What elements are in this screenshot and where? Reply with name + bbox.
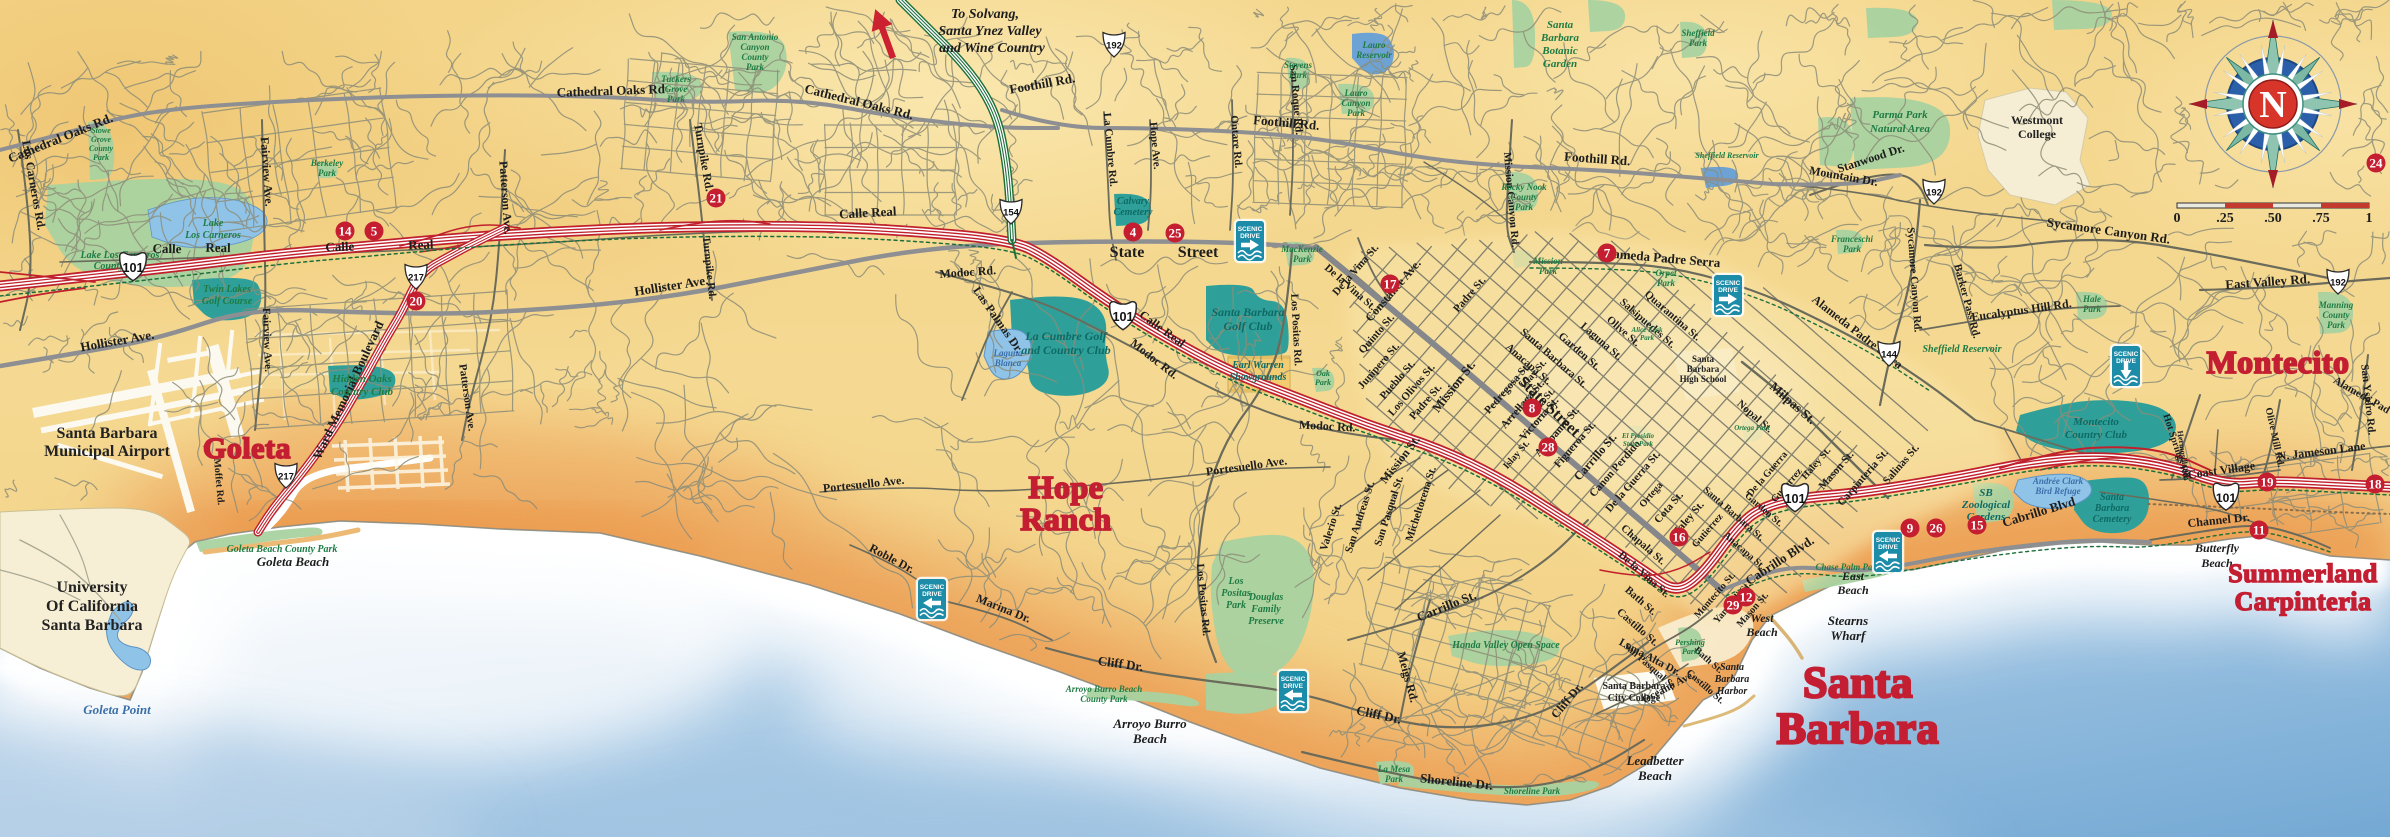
- svg-text:Beach: Beach: [1637, 768, 1672, 783]
- svg-text:Montecito: Montecito: [2072, 416, 2119, 428]
- svg-text:Lake: Lake: [202, 218, 224, 229]
- svg-text:Sheffield: Sheffield: [1681, 28, 1715, 38]
- svg-text:Carpinteria: Carpinteria: [2235, 587, 2372, 616]
- svg-text:Park: Park: [1682, 647, 1698, 656]
- svg-text:11: 11: [2253, 523, 2265, 538]
- svg-text:Honda Valley Open Space: Honda Valley Open Space: [1451, 640, 1560, 651]
- svg-text:SCENIC: SCENIC: [2114, 351, 2139, 358]
- svg-text:144: 144: [1881, 350, 1898, 361]
- svg-text:SB: SB: [1979, 487, 1992, 499]
- svg-text:Ortega Park: Ortega Park: [1734, 424, 1770, 432]
- svg-text:Park: Park: [1539, 266, 1558, 276]
- svg-text:Barbara: Barbara: [2094, 503, 2129, 514]
- svg-text:Golf Course: Golf Course: [202, 296, 253, 307]
- svg-text:Bird Refuge: Bird Refuge: [2034, 486, 2080, 496]
- svg-text:217: 217: [278, 472, 294, 483]
- svg-text:101: 101: [122, 261, 143, 275]
- svg-text:DRIVE: DRIVE: [1718, 287, 1739, 294]
- svg-text:Botanic: Botanic: [1541, 45, 1578, 57]
- svg-text:County: County: [741, 52, 769, 62]
- svg-text:Park: Park: [1315, 378, 1331, 387]
- svg-text:Beach: Beach: [1132, 731, 1167, 746]
- svg-text:Calle Real: Calle Real: [839, 203, 897, 221]
- svg-text:Santa: Santa: [2100, 492, 2124, 503]
- svg-text:Westmont: Westmont: [2011, 113, 2063, 127]
- svg-text:Park: Park: [2083, 304, 2102, 314]
- svg-text:217: 217: [408, 273, 424, 284]
- svg-text:State Park: State Park: [1623, 440, 1654, 448]
- svg-text:192: 192: [1926, 188, 1942, 199]
- svg-text:Barbara: Barbara: [1777, 704, 1939, 753]
- svg-text:Park: Park: [2327, 320, 2346, 330]
- svg-text:14: 14: [339, 224, 353, 239]
- svg-text:Wharf: Wharf: [1831, 628, 1867, 643]
- svg-text:Parma Park: Parma Park: [1872, 109, 1928, 121]
- svg-text:N: N: [2259, 84, 2286, 126]
- svg-text:High School: High School: [1680, 374, 1727, 384]
- svg-text:Street: Street: [1178, 244, 1219, 261]
- svg-text:Park: Park: [1843, 244, 1862, 254]
- svg-text:Alice Keck: Alice Keck: [1631, 326, 1663, 334]
- svg-text:To Solvang,: To Solvang,: [951, 7, 1019, 22]
- svg-text:Barbara: Barbara: [1714, 674, 1749, 685]
- svg-text:28: 28: [1542, 440, 1556, 455]
- svg-text:DRIVE: DRIVE: [1240, 233, 1261, 240]
- svg-text:15: 15: [1971, 518, 1985, 533]
- svg-text:Sheffield Reservoir: Sheffield Reservoir: [1695, 151, 1759, 160]
- svg-text:Park: Park: [1347, 108, 1366, 118]
- svg-text:Stowe: Stowe: [91, 126, 111, 135]
- svg-text:Showgrounds: Showgrounds: [1230, 372, 1287, 383]
- svg-text:Blanca: Blanca: [994, 358, 1022, 368]
- svg-text:Positas: Positas: [1221, 588, 1251, 599]
- svg-text:State: State: [1110, 244, 1145, 261]
- svg-text:Park: Park: [1385, 774, 1404, 784]
- svg-text:and Wine Country: and Wine Country: [939, 41, 1046, 56]
- svg-text:9: 9: [1907, 521, 1914, 536]
- svg-text:Hale: Hale: [2082, 294, 2101, 304]
- svg-text:Reservoir: Reservoir: [1355, 50, 1392, 60]
- svg-text:Goleta: Goleta: [203, 432, 291, 465]
- svg-text:Montecito: Montecito: [2206, 344, 2349, 380]
- svg-text:Park: Park: [93, 153, 109, 162]
- svg-text:.50: .50: [2264, 211, 2282, 226]
- svg-text:Arroyo Burro Beach: Arroyo Burro Beach: [1065, 684, 1143, 694]
- svg-text:Hidden Oaks: Hidden Oaks: [331, 373, 392, 385]
- svg-text:Sheffield Reservoir: Sheffield Reservoir: [1923, 344, 2002, 355]
- svg-text:.25: .25: [2216, 211, 2234, 226]
- svg-text:Santa: Santa: [1803, 658, 1913, 707]
- svg-text:24: 24: [2370, 156, 2384, 171]
- svg-text:101: 101: [2216, 491, 2236, 505]
- svg-text:Park: Park: [1226, 600, 1246, 611]
- svg-text:Calvary: Calvary: [1117, 196, 1150, 207]
- svg-text:Country Club: Country Club: [2065, 429, 2128, 441]
- svg-text:20: 20: [410, 294, 423, 309]
- svg-text:Park: Park: [667, 94, 686, 104]
- svg-text:Park: Park: [746, 62, 765, 72]
- svg-text:SCENIC: SCENIC: [1238, 226, 1263, 233]
- svg-text:Hope: Hope: [1029, 469, 1104, 505]
- svg-text:Santa: Santa: [1720, 662, 1744, 673]
- svg-text:Stevens: Stevens: [1284, 60, 1312, 70]
- svg-text:Modoc Rd.: Modoc Rd.: [1299, 418, 1356, 435]
- svg-text:Oak: Oak: [1316, 369, 1330, 378]
- svg-text:Calle: Calle: [325, 238, 355, 254]
- svg-text:Lauro: Lauro: [1361, 40, 1386, 50]
- svg-text:Santa: Santa: [1547, 19, 1574, 31]
- svg-text:Santa: Santa: [1692, 354, 1715, 364]
- svg-text:Natural Area: Natural Area: [1869, 123, 1930, 135]
- svg-text:Santa Barbara: Santa Barbara: [57, 425, 158, 442]
- svg-text:Barbara: Barbara: [1540, 32, 1579, 44]
- svg-text:Family: Family: [1250, 604, 1281, 615]
- svg-text:Country Club: Country Club: [331, 386, 394, 398]
- svg-text:El Presidio: El Presidio: [1621, 432, 1655, 440]
- svg-text:25: 25: [1169, 226, 1183, 241]
- svg-text:Beach: Beach: [1745, 625, 1778, 639]
- svg-text:4: 4: [1130, 225, 1137, 240]
- svg-text:Park: Park: [1657, 278, 1676, 288]
- svg-text:Canyon: Canyon: [740, 42, 769, 52]
- svg-text:Cemetery: Cemetery: [2093, 514, 2132, 525]
- svg-text:County: County: [1510, 192, 1538, 202]
- svg-text:Butterfly: Butterfly: [2194, 541, 2240, 555]
- svg-text:Santa Barbara: Santa Barbara: [1602, 681, 1665, 692]
- svg-text:Tuckers: Tuckers: [661, 74, 691, 84]
- svg-text:Barbara: Barbara: [1687, 364, 1720, 374]
- svg-text:San Antonio: San Antonio: [732, 32, 779, 42]
- svg-text:Canyon: Canyon: [1341, 98, 1370, 108]
- svg-text:Park: Park: [1293, 254, 1312, 264]
- svg-text:Ranch: Ranch: [1020, 501, 1111, 537]
- svg-text:East: East: [1841, 569, 1865, 583]
- svg-text:Laguna: Laguna: [992, 348, 1023, 358]
- svg-text:Mission: Mission: [1532, 256, 1563, 266]
- svg-text:Real: Real: [205, 240, 231, 255]
- svg-text:Preserve: Preserve: [1248, 616, 1284, 627]
- svg-text:Santa Barbara: Santa Barbara: [42, 617, 143, 634]
- svg-text:192: 192: [2330, 278, 2346, 289]
- svg-text:Franceschi: Franceschi: [1830, 234, 1874, 244]
- svg-text:Pershing: Pershing: [1675, 638, 1705, 647]
- svg-text:Park: Park: [1640, 334, 1655, 342]
- svg-text:.75: .75: [2312, 211, 2330, 226]
- svg-text:Berkeley: Berkeley: [310, 158, 344, 168]
- svg-text:Twin Lakes: Twin Lakes: [203, 284, 251, 295]
- svg-text:SCENIC: SCENIC: [1876, 537, 1901, 544]
- svg-text:17: 17: [1384, 277, 1398, 292]
- svg-text:City College: City College: [1608, 693, 1661, 704]
- svg-text:18: 18: [2369, 477, 2383, 492]
- svg-text:Grove: Grove: [665, 84, 688, 94]
- svg-text:21: 21: [710, 191, 723, 206]
- svg-text:101: 101: [1784, 492, 1805, 506]
- svg-text:7: 7: [1604, 246, 1611, 261]
- svg-text:Shoreline Park: Shoreline Park: [1504, 786, 1561, 796]
- svg-text:County: County: [89, 144, 113, 153]
- svg-text:19: 19: [2261, 475, 2275, 490]
- svg-text:Los: Los: [1228, 576, 1244, 587]
- svg-text:University: University: [56, 579, 127, 596]
- svg-text:DRIVE: DRIVE: [1283, 683, 1304, 690]
- svg-text:Harbor: Harbor: [1716, 686, 1748, 697]
- svg-text:Summerland: Summerland: [2228, 559, 2378, 588]
- svg-text:0: 0: [2174, 211, 2181, 226]
- svg-text:1: 1: [2366, 211, 2373, 226]
- svg-text:101: 101: [1112, 310, 1133, 324]
- svg-text:Stearns: Stearns: [1828, 613, 1868, 628]
- svg-text:Earl Warren: Earl Warren: [1231, 360, 1284, 371]
- svg-text:Lauro: Lauro: [1343, 88, 1368, 98]
- svg-text:Santa Ynez Valley: Santa Ynez Valley: [938, 24, 1042, 39]
- svg-text:Real: Real: [408, 237, 434, 253]
- svg-text:Zoological: Zoological: [1961, 499, 2011, 511]
- svg-text:Goleta Point: Goleta Point: [83, 702, 151, 717]
- svg-text:Fairview Ave.: Fairview Ave.: [260, 308, 274, 373]
- svg-text:Of California: Of California: [46, 598, 138, 615]
- svg-text:Cemetery: Cemetery: [1114, 207, 1153, 218]
- svg-text:Rocky Nook: Rocky Nook: [1500, 182, 1547, 192]
- svg-text:Orpet: Orpet: [1656, 268, 1677, 278]
- svg-text:Park: Park: [318, 168, 337, 178]
- svg-text:12: 12: [1740, 590, 1753, 605]
- svg-text:192: 192: [1106, 41, 1122, 52]
- svg-text:Grove: Grove: [91, 135, 111, 144]
- svg-text:Douglas: Douglas: [1248, 592, 1284, 603]
- svg-text:Park: Park: [1289, 70, 1308, 80]
- svg-text:County Park: County Park: [1080, 694, 1128, 704]
- svg-text:La Cumbre Golf: La Cumbre Golf: [1024, 329, 1107, 343]
- svg-text:Golf Club: Golf Club: [1223, 319, 1272, 333]
- svg-text:Santa Barbara: Santa Barbara: [1211, 305, 1284, 319]
- svg-text:SCENIC: SCENIC: [1716, 280, 1741, 287]
- svg-text:College: College: [2018, 127, 2057, 141]
- svg-text:Park: Park: [1515, 202, 1534, 212]
- svg-text:County: County: [2322, 310, 2350, 320]
- svg-text:Garden: Garden: [1543, 58, 1577, 70]
- svg-text:La Mesa: La Mesa: [1377, 764, 1411, 774]
- svg-text:and Country Club: and Country Club: [1021, 343, 1110, 357]
- svg-text:16: 16: [1673, 530, 1687, 545]
- svg-text:Beach: Beach: [1836, 583, 1869, 597]
- svg-text:Los Carneros: Los Carneros: [184, 230, 241, 241]
- svg-text:Andrée Clark: Andrée Clark: [2032, 476, 2084, 486]
- svg-text:Park: Park: [1689, 38, 1708, 48]
- svg-text:MacKenzie: MacKenzie: [1280, 244, 1323, 254]
- svg-text:Municipal Airport: Municipal Airport: [44, 443, 170, 460]
- svg-text:West: West: [1750, 611, 1774, 625]
- svg-text:Manning: Manning: [2318, 300, 2354, 310]
- svg-text:Leadbetter: Leadbetter: [1625, 753, 1684, 768]
- svg-text:26: 26: [1930, 521, 1944, 536]
- svg-text:DRIVE: DRIVE: [1878, 544, 1899, 551]
- svg-text:8: 8: [1529, 401, 1536, 416]
- svg-text:SCENIC: SCENIC: [920, 584, 945, 591]
- svg-text:DRIVE: DRIVE: [922, 591, 943, 598]
- svg-text:Goleta Beach: Goleta Beach: [257, 554, 330, 569]
- svg-text:Arroyo Burro: Arroyo Burro: [1112, 716, 1187, 731]
- svg-text:SCENIC: SCENIC: [1281, 676, 1306, 683]
- svg-text:154: 154: [1003, 208, 1020, 219]
- svg-text:5: 5: [371, 224, 378, 239]
